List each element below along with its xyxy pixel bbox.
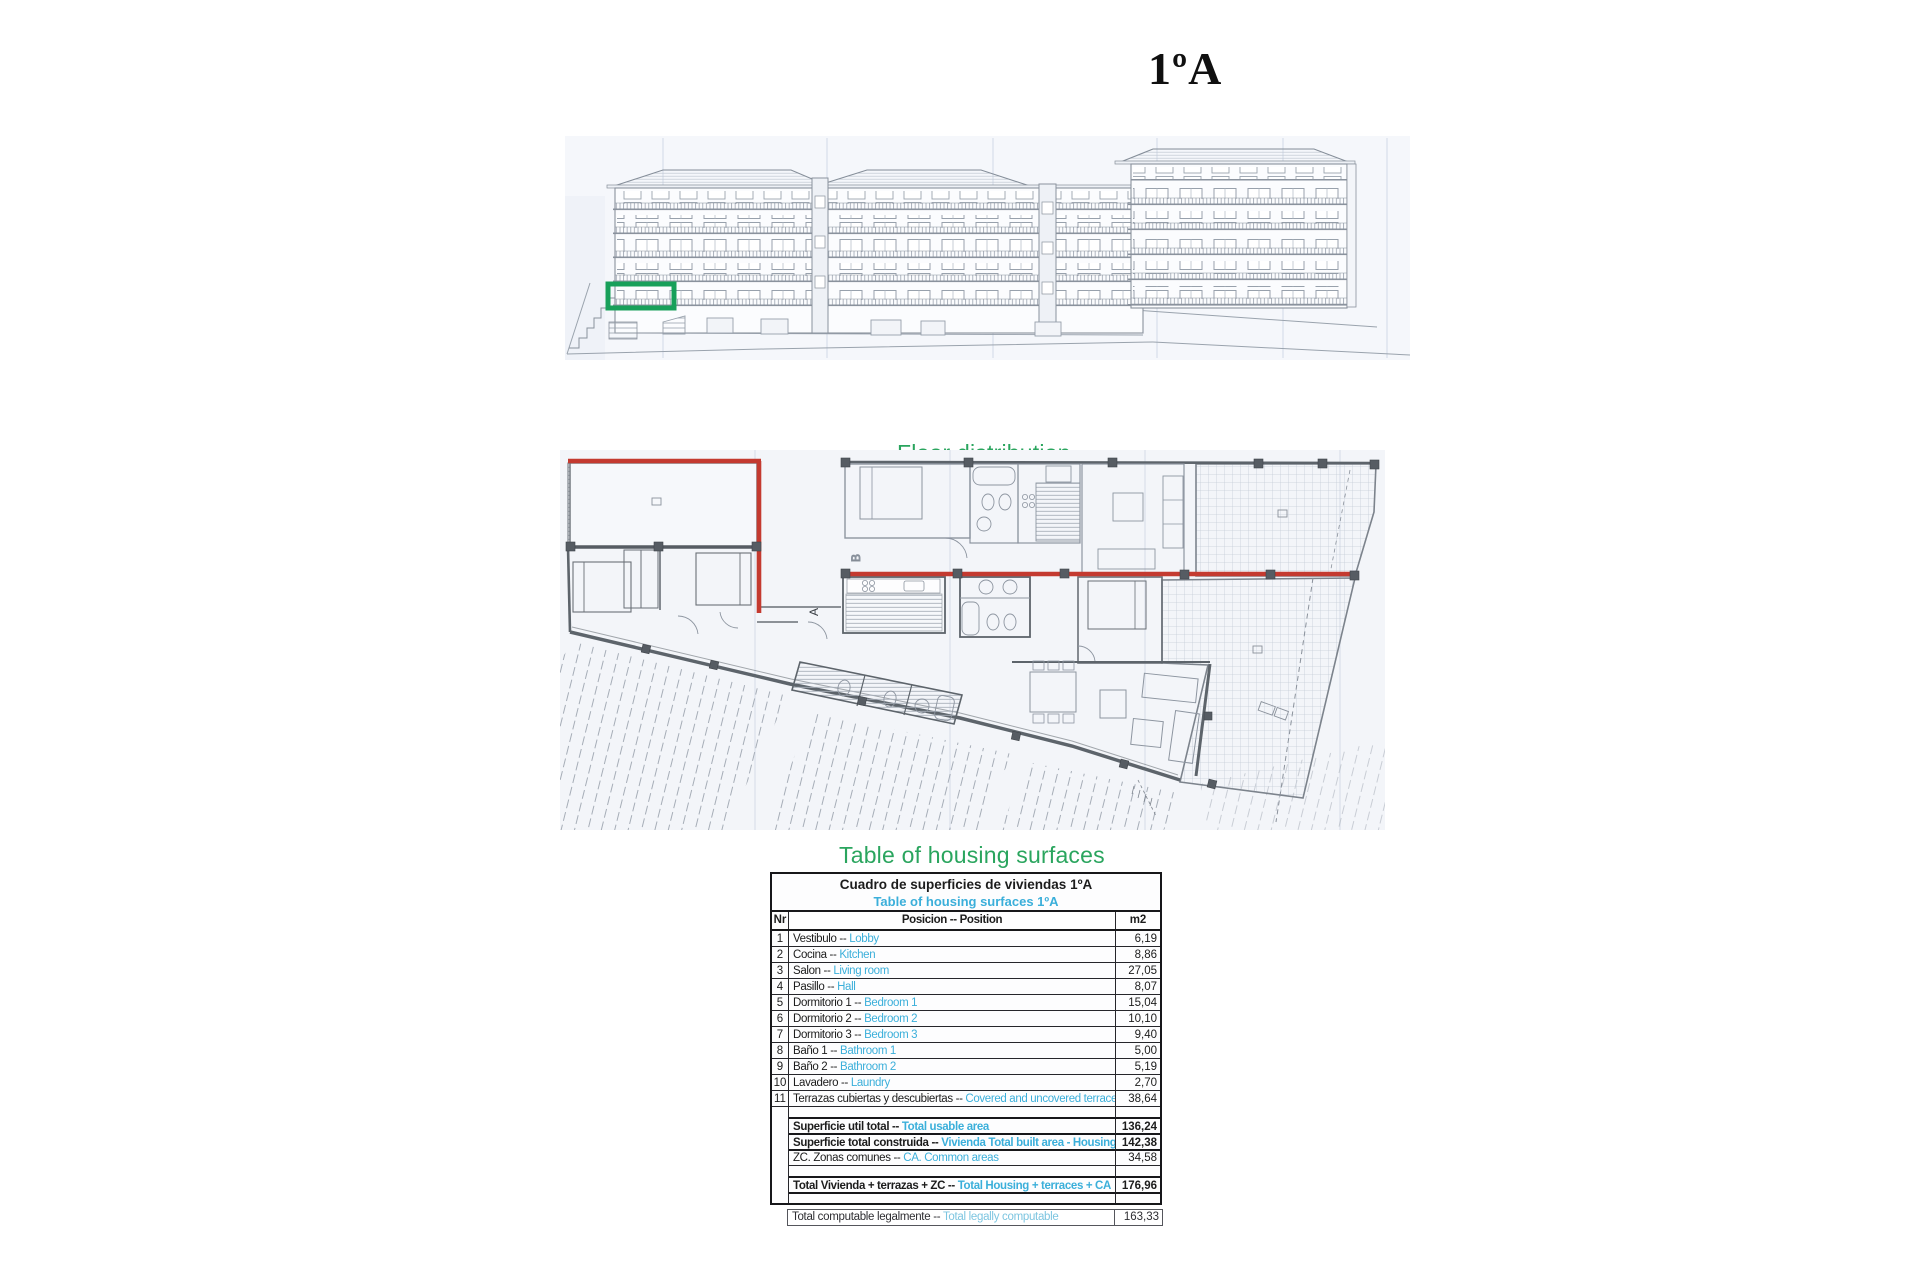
- surface-summary: Superficie util total -- Total usable ar…: [772, 1107, 1160, 1203]
- surface-rows: 1Vestibulo -- Lobby6,192Cocina -- Kitche…: [772, 931, 1160, 1107]
- table-header-row: Nr Posicion -- Position m2: [772, 910, 1160, 931]
- building-elevation-drawing: [565, 136, 1410, 360]
- col-header-m2: m2: [1116, 912, 1160, 929]
- col-header-nr: Nr: [772, 912, 789, 929]
- unit-b-label: B: [849, 554, 863, 562]
- table-spacer-row: [772, 1194, 1160, 1203]
- table-row: 10Lavadero -- Laundry2,70: [772, 1075, 1160, 1091]
- tower: [1115, 149, 1356, 308]
- hillside-wash: [565, 196, 605, 360]
- unit-title: 1ºA: [1148, 42, 1222, 95]
- col-header-position: Posicion -- Position: [789, 912, 1116, 929]
- legal-total-row: Total computable legalmente -- Total leg…: [787, 1209, 1163, 1226]
- table-summary-row: Superficie total construida -- Vivienda …: [772, 1135, 1160, 1151]
- table-title-es: Cuadro de superficies de viviendas 1ºA: [772, 874, 1160, 894]
- legal-total-label: Total computable legalmente -- Total leg…: [788, 1210, 1115, 1225]
- legal-total-value: 163,33: [1115, 1210, 1162, 1225]
- surfaces-table: Cuadro de superficies de viviendas 1ºA T…: [770, 872, 1162, 1205]
- table-row: 5Dormitorio 1 -- Bedroom 115,04: [772, 995, 1160, 1011]
- table-row: 3Salon -- Living room27,05: [772, 963, 1160, 979]
- table-row: 6Dormitorio 2 -- Bedroom 210,10: [772, 1011, 1160, 1027]
- table-summary-row: Superficie util total -- Total usable ar…: [772, 1119, 1160, 1135]
- table-spacer-row: [772, 1166, 1160, 1178]
- unit-a-label: A: [807, 608, 821, 616]
- table-row: 9Baño 2 -- Bathroom 25,19: [772, 1059, 1160, 1075]
- table-row: 7Dormitorio 3 -- Bedroom 39,40: [772, 1027, 1160, 1043]
- table-title-en: Table of housing surfaces 1ºA: [772, 894, 1160, 910]
- floor-plan-drawing: A: [560, 450, 1385, 830]
- floor-plan-svg: A: [560, 450, 1385, 830]
- terrace-room-topleft: [568, 463, 757, 547]
- table-heading: Table of housing surfaces: [839, 842, 1105, 869]
- table-summary-row: ZC. Zonas comunes -- CA. Common areas34,…: [772, 1151, 1160, 1166]
- elevation-svg: [565, 136, 1410, 360]
- table-summary-row: Total Vivienda + terrazas + ZC -- Total …: [772, 1178, 1160, 1194]
- table-spacer-row: [772, 1107, 1160, 1119]
- table-row: 4Pasillo -- Hall8,07: [772, 979, 1160, 995]
- table-row: 11Terrazas cubiertas y descubiertas -- C…: [772, 1091, 1160, 1107]
- main-floors: [613, 191, 1145, 306]
- table-row: 1Vestibulo -- Lobby6,19: [772, 931, 1160, 947]
- table-row: 8Baño 1 -- Bathroom 15,00: [772, 1043, 1160, 1059]
- kitchen: [843, 577, 945, 633]
- table-row: 2Cocina -- Kitchen8,86: [772, 947, 1160, 963]
